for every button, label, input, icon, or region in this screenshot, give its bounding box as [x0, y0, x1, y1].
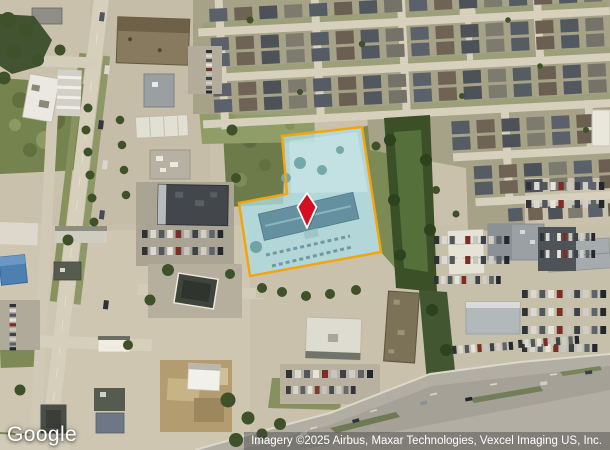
- imagery-attribution: Imagery ©2025 Airbus, Maxar Technologies…: [244, 432, 610, 450]
- google-logo[interactable]: Google: [7, 423, 77, 447]
- attribution-text: Imagery ©2025 Airbus, Maxar Technologies…: [251, 435, 602, 447]
- building-large-brown: [116, 17, 190, 65]
- building-restaurant: [174, 273, 218, 309]
- satellite-map[interactable]: [0, 0, 610, 450]
- building-bigbox-dark: [158, 184, 229, 225]
- construction-site: [160, 360, 232, 432]
- map-viewport[interactable]: Google Imagery ©2025 Airbus, Maxar Techn…: [0, 0, 610, 450]
- building-blue-roof: [0, 255, 27, 286]
